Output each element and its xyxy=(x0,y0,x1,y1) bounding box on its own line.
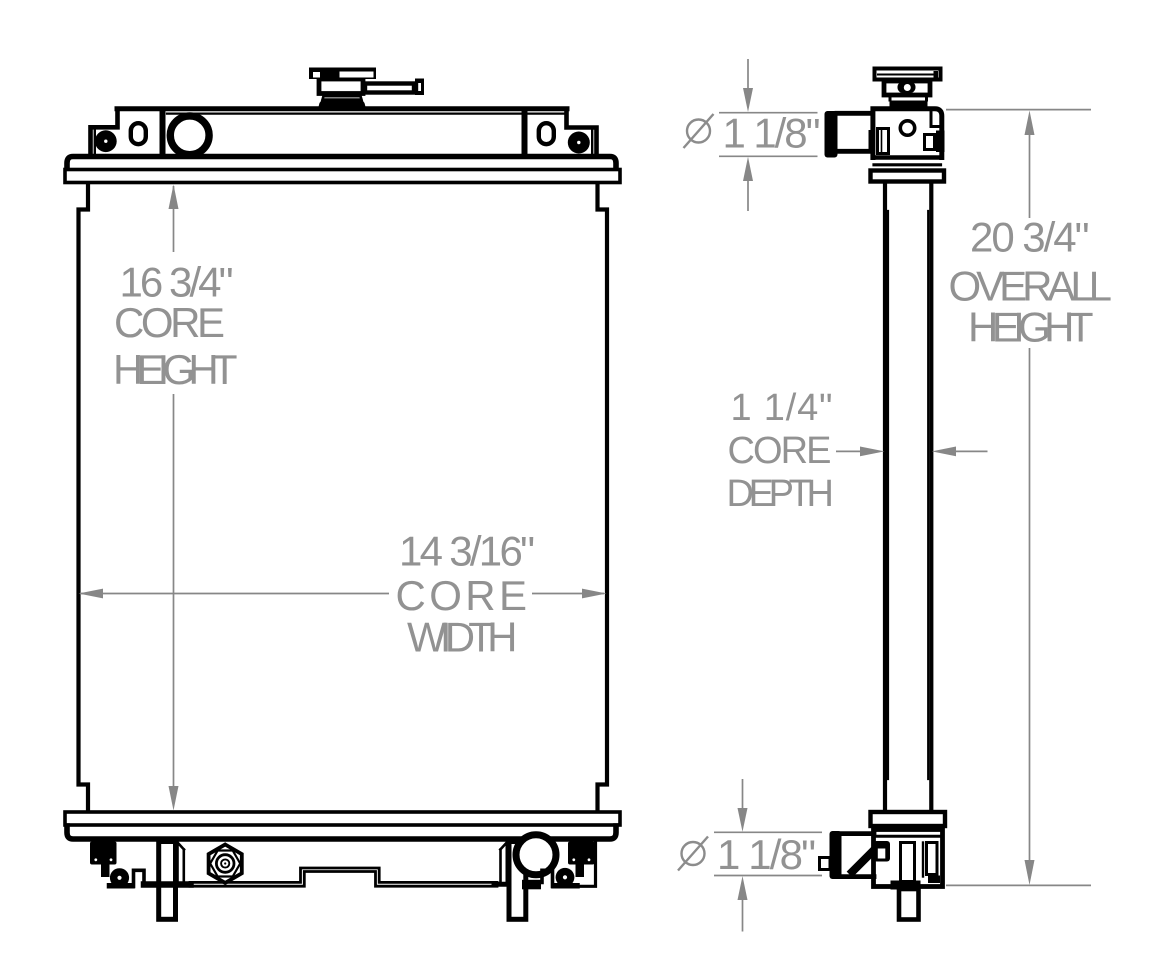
svg-text:DEPTH: DEPTH xyxy=(727,473,835,515)
svg-text:1 1/8": 1 1/8" xyxy=(723,109,821,156)
svg-text:CORE: CORE xyxy=(396,572,528,619)
svg-text:CORE: CORE xyxy=(114,299,225,346)
svg-text:HEIGHT: HEIGHT xyxy=(113,346,238,393)
svg-text:WIDTH: WIDTH xyxy=(407,614,518,661)
svg-text:1 1/4": 1 1/4" xyxy=(731,387,833,429)
svg-text:1 1/8": 1 1/8" xyxy=(717,831,816,878)
svg-text:14 3/16": 14 3/16" xyxy=(399,528,535,575)
svg-text:20 3/4": 20 3/4" xyxy=(970,214,1090,261)
svg-text:CORE: CORE xyxy=(728,430,832,472)
svg-text:HEIGHT: HEIGHT xyxy=(968,304,1094,351)
